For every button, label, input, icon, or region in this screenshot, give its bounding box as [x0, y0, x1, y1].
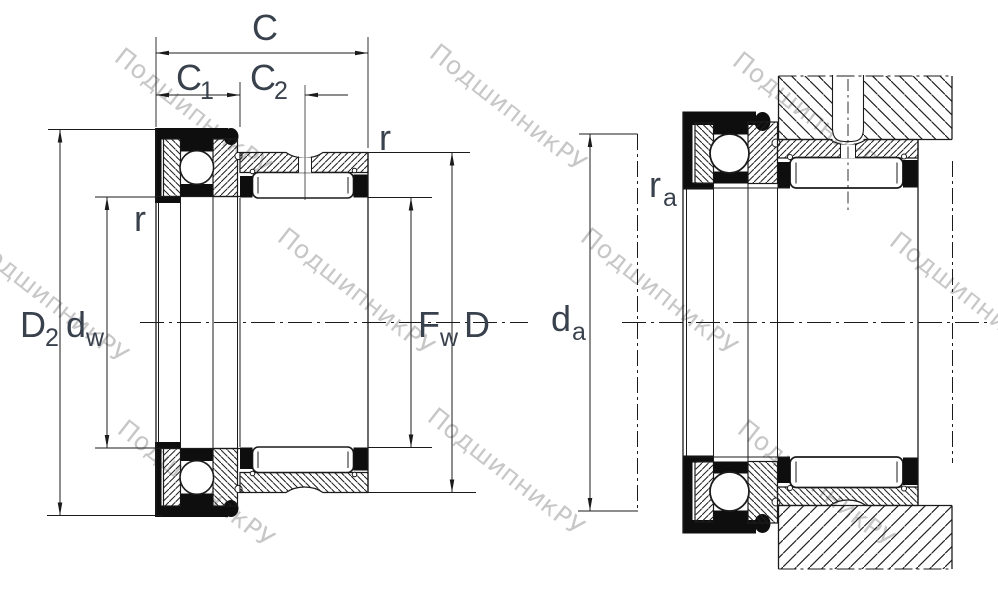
seal-side-strip: [683, 112, 693, 189]
bearing-drawing-page: ПодшипникРУ ПодшипникРУ ПодшипникРУ Подш…: [0, 0, 998, 596]
dim-label-ra-base: r: [649, 164, 661, 205]
left-view-dimensions: [47, 37, 476, 516]
left-view-lower-half: [155, 442, 368, 517]
dim-label-r-left: r: [134, 198, 146, 239]
ball-cage-inner: [181, 184, 214, 197]
cage-bump: [788, 155, 793, 160]
dim-label-da: d a: [551, 298, 586, 346]
housing-block-top: [779, 75, 953, 142]
housing-hatch: [779, 506, 953, 570]
dim-label-r-right: r: [379, 117, 391, 158]
cup-lip-left: [240, 176, 253, 198]
dim-label-c2-base: C: [250, 57, 276, 98]
watermark-text: ПодшипникРУ: [575, 222, 743, 362]
arrowhead: [450, 480, 455, 493]
dim-label-fw: F w: [418, 304, 459, 352]
thrust-washer-left: [164, 139, 181, 197]
arrowhead: [58, 130, 63, 143]
left-view-bearing-section: C C 1 C 2 r r D 2 d w F w D: [20, 7, 528, 517]
watermark-text: ПодшипникРУ: [422, 402, 590, 542]
ball-cage-outer: [714, 122, 749, 135]
dim-label-ra: r a: [649, 164, 677, 212]
cage-bump: [250, 169, 255, 174]
watermark-text: ПодшипникРУ: [0, 230, 134, 370]
dim-label-c2-sub: 2: [274, 77, 288, 105]
arrowhead: [305, 93, 318, 98]
thrust-ball: [180, 151, 214, 185]
arrowhead: [105, 435, 110, 448]
seal-bottom-band: [155, 197, 181, 204]
dim-label-dw-base: d: [66, 304, 86, 345]
cage-bump: [902, 154, 907, 159]
arrowhead: [450, 153, 455, 166]
watermark-text: ПодшипникРУ: [424, 38, 592, 178]
dim-label-d: D: [464, 304, 490, 345]
housing-hatch: [779, 76, 953, 140]
needle-rollers: [790, 158, 903, 189]
needle-rollers: [253, 173, 354, 199]
arrowhead: [105, 197, 110, 210]
arrowhead: [588, 134, 593, 147]
dim-label-c2: C 2: [250, 57, 288, 105]
arrowhead: [227, 93, 240, 98]
arrowhead: [409, 198, 414, 211]
housing-block-bottom: [779, 506, 953, 570]
dim-label-dw-sub: w: [85, 324, 105, 352]
seal-top-band: [155, 128, 228, 140]
arrowhead: [355, 51, 368, 56]
cup-lip-right: [354, 175, 369, 198]
dim-label-c: C: [252, 7, 278, 48]
right-view-mounted-section: r a d a: [551, 75, 992, 569]
dim-label-ra-sub: a: [663, 184, 677, 212]
dim-label-d2-base: D: [20, 304, 46, 345]
dim-label-c1-base: C: [176, 57, 202, 98]
arrowhead: [58, 503, 63, 516]
dim-label-fw-base: F: [418, 304, 440, 345]
dim-label-dw: d w: [66, 304, 105, 352]
outer-ring-ball-section: [748, 122, 778, 184]
dim-label-c1: C 1: [176, 57, 214, 105]
cup-lip-left: [778, 162, 791, 188]
dim-label-da-sub: a: [572, 318, 586, 346]
thrust-ball: [710, 134, 749, 173]
cage-bump: [352, 168, 357, 173]
arrowhead: [156, 51, 169, 56]
dim-c2: [305, 93, 348, 98]
technical-drawing-canvas: ПодшипникРУ ПодшипникРУ ПодшипникРУ Подш…: [0, 0, 998, 596]
outer-ring-ball-section: [213, 139, 238, 197]
cup-lip-right: [903, 160, 918, 188]
arrowhead: [409, 435, 414, 448]
dim-label-fw-sub: w: [439, 324, 459, 352]
left-view-upper-half: [155, 128, 368, 203]
ball-cage-outer: [181, 139, 214, 152]
arrowhead: [588, 498, 593, 511]
dim-label-da-base: d: [551, 298, 571, 339]
dim-label-c1-sub: 1: [200, 77, 214, 105]
watermark-text: ПодшипникРУ: [272, 222, 440, 362]
dim-label-d2-sub: 2: [45, 324, 59, 352]
watermark-text: ПодшипникРУ: [884, 226, 998, 366]
